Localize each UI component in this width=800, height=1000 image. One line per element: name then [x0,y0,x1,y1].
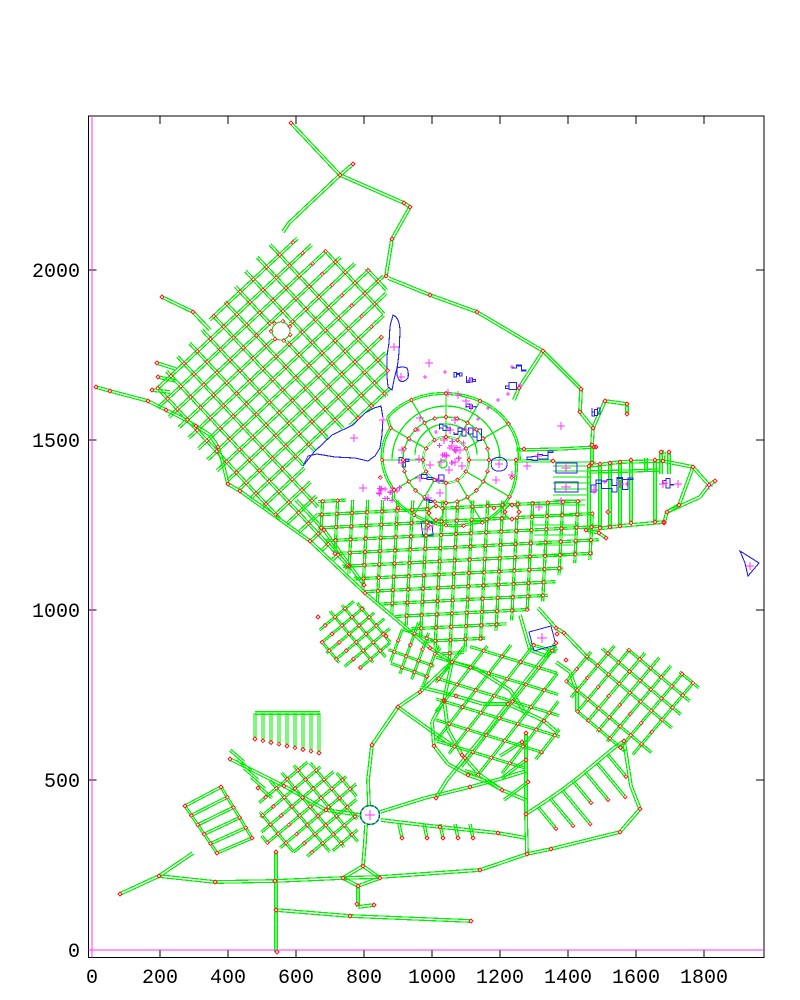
svg-text:1500: 1500 [32,431,80,454]
svg-text:0: 0 [68,941,80,964]
svg-text:1200: 1200 [476,967,524,990]
svg-text:400: 400 [210,967,246,990]
svg-text:0: 0 [86,967,98,990]
svg-text:1800: 1800 [680,967,728,990]
svg-text:1000: 1000 [32,601,80,624]
svg-text:500: 500 [44,771,80,794]
svg-text:800: 800 [346,967,382,990]
svg-text:200: 200 [142,967,178,990]
svg-text:1400: 1400 [544,967,592,990]
svg-text:1600: 1600 [612,967,660,990]
svg-text:600: 600 [278,967,314,990]
svg-text:1000: 1000 [408,967,456,990]
svg-text:2000: 2000 [32,261,80,284]
